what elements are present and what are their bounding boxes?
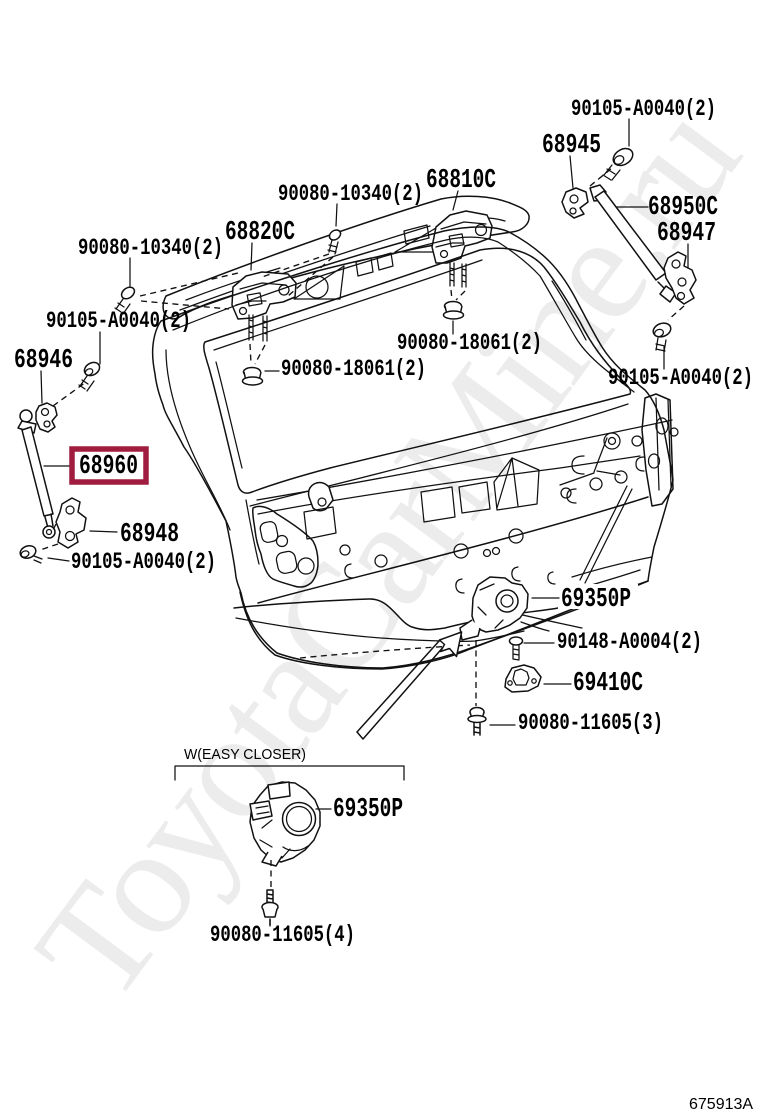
svg-text:90105-A0040(2): 90105-A0040(2) [46,308,191,334]
svg-text:69350P: 69350P [333,795,403,825]
svg-text:68946: 68946 [14,346,73,376]
svg-text:68960: 68960 [79,452,138,482]
svg-text:68947: 68947 [657,219,716,249]
svg-text:90080-11605(3): 90080-11605(3) [518,710,663,736]
svg-text:68945: 68945 [542,131,601,161]
svg-text:90105-A0040(2): 90105-A0040(2) [608,365,753,391]
svg-text:90080-11605(4): 90080-11605(4) [210,922,355,948]
svg-text:90080-10340(2): 90080-10340(2) [78,235,223,261]
svg-text:W(EASY CLOSER): W(EASY CLOSER) [184,747,306,763]
svg-text:90080-10340(2): 90080-10340(2) [278,181,423,207]
svg-text:68810C: 68810C [426,166,496,196]
svg-text:90148-A0004(2): 90148-A0004(2) [557,629,702,655]
svg-text:68948: 68948 [120,520,179,550]
svg-text:90105-A0040(2): 90105-A0040(2) [571,96,716,122]
svg-text:90080-18061(2): 90080-18061(2) [281,356,426,382]
svg-text:69350P: 69350P [561,585,631,615]
svg-text:90080-18061(2): 90080-18061(2) [397,330,542,356]
svg-text:68820C: 68820C [225,218,295,248]
svg-text:675913A: 675913A [689,1096,753,1112]
svg-text:69410C: 69410C [573,669,643,699]
svg-text:90105-A0040(2): 90105-A0040(2) [71,549,216,575]
